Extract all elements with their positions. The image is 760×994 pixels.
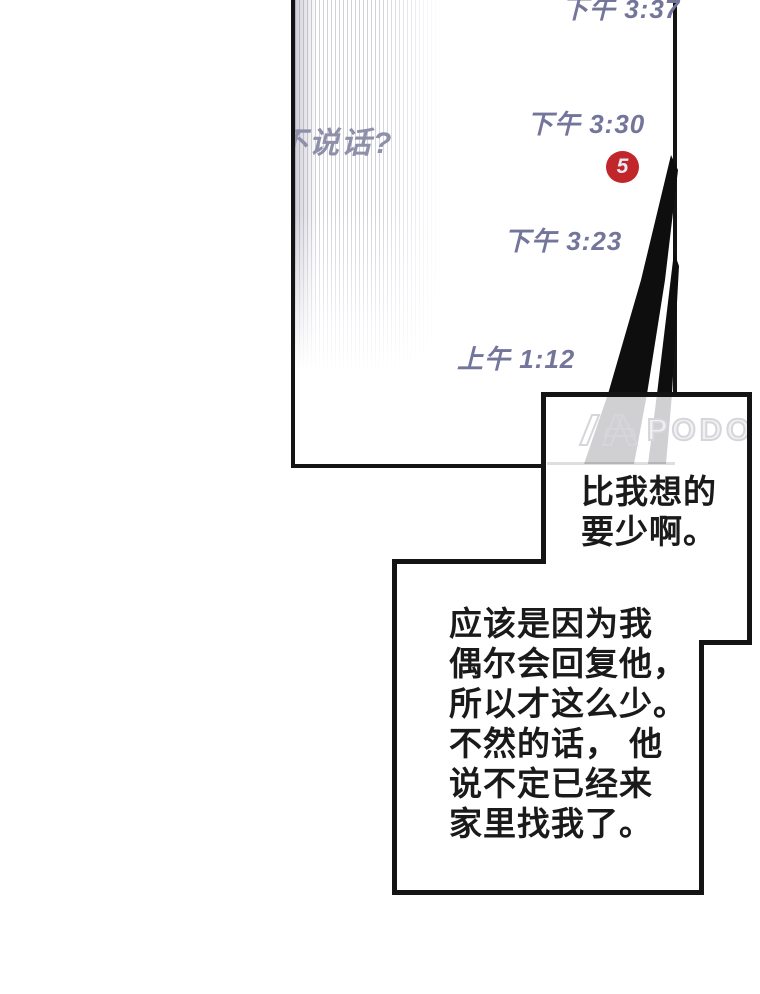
bubble2-line: 所以才这么少。 [449, 684, 687, 724]
bubble2-text: 应该是因为我 偶尔会回复他， 所以才这么少。 不然的话， 他 说不定已经来 家里… [449, 604, 687, 844]
bubble2-line: 不然的话， 他 [449, 724, 687, 764]
bubble2-line: 家里找我了。 [449, 804, 687, 844]
bubble1-border-left [541, 392, 546, 564]
comic-panel-page: 不说话? 下午 3:37 下午 3:30 下午 3:23 上午 1:12 5 P… [0, 0, 760, 994]
hatch-shading-lines [295, 0, 453, 395]
bubble2-border-left [392, 559, 397, 895]
bubble2-border-top [392, 559, 546, 564]
bubble1-line: 要少啊。 [581, 512, 717, 552]
bubble2-border-right [699, 640, 704, 895]
unread-count-badge: 5 [606, 151, 639, 183]
bubble1-border-top [541, 392, 752, 397]
bubble1-border-right [747, 392, 752, 645]
bubble1-line: 比我想的 [581, 472, 717, 512]
panel-edge-ghost-line [547, 462, 675, 465]
timestamp-4: 上午 1:12 [457, 339, 575, 376]
timestamp-2: 下午 3:30 [527, 104, 645, 141]
timestamp-3: 下午 3:23 [504, 221, 622, 258]
bubble1-text: 比我想的 要少啊。 [581, 472, 717, 552]
bubble2-line: 说不定已经来 [449, 764, 687, 804]
bubble2-line: 应该是因为我 [449, 604, 687, 644]
bubble2-line: 偶尔会回复他， [449, 644, 687, 684]
unread-count: 5 [617, 155, 629, 179]
bubble2-border-bottom [392, 890, 704, 895]
timestamp-1: 下午 3:37 [562, 0, 680, 26]
chat-message-partial: 不说话? [291, 118, 393, 162]
bubble1-border-bottom [699, 640, 752, 645]
